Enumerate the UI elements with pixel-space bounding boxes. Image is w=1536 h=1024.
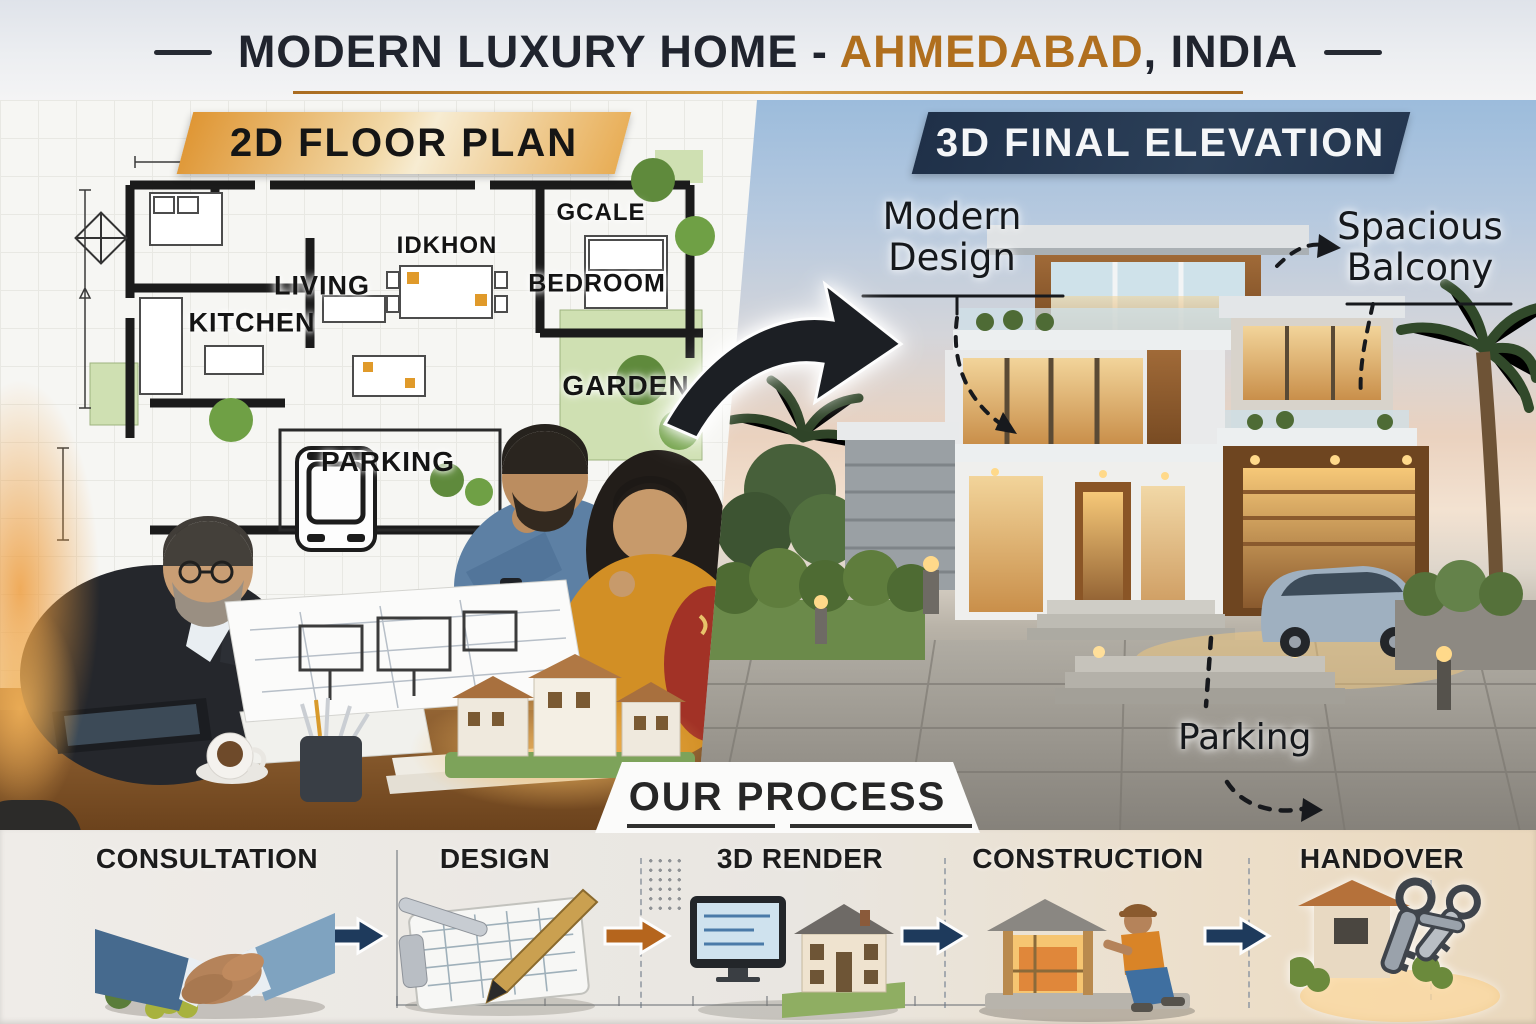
transform-arrow-icon: [655, 272, 905, 442]
process-underline-right: [790, 824, 972, 828]
step-label-3d-render: 3D RENDER: [717, 843, 883, 875]
process-title: OUR PROCESS: [629, 775, 947, 820]
monitor-house-icon: [690, 886, 905, 1021]
annotation-parking: Parking: [1178, 718, 1308, 758]
page-title: MODERN LUXURY HOME - AHMEDABAD, INDIA: [238, 26, 1298, 78]
title-prefix: MODERN LUXURY HOME -: [238, 26, 840, 77]
poster-canvas: MODERN LUXURY HOME - AHMEDABAD, INDIA: [0, 0, 1536, 1024]
title-row: MODERN LUXURY HOME - AHMEDABAD, INDIA: [0, 26, 1536, 78]
annotation-spacious-balcony: Spacious Balcony: [1320, 206, 1520, 289]
house-keys-icon: [1290, 876, 1520, 1022]
room-label-kitchen: KITCHEN: [189, 308, 316, 339]
step-label-consultation: CONSULTATION: [96, 843, 318, 875]
wall-lamp-glow-2: [0, 600, 80, 820]
dots-decoration: [646, 856, 684, 914]
room-label-living: LIVING: [274, 271, 370, 302]
step-arrow-4-icon: [1203, 916, 1273, 956]
room-label-dining: IDKHON: [397, 232, 498, 260]
process-banner: OUR PROCESS: [595, 762, 980, 833]
builder-icon: [975, 885, 1200, 1022]
clipboard-pen-icon: [395, 888, 605, 1018]
step-label-handover: HANDOVER: [1300, 843, 1464, 875]
floorplan-panel: KITCHEN LIVING IDKHON GCALE BEDROOM GARD…: [0, 100, 770, 832]
header: MODERN LUXURY HOME - AHMEDABAD, INDIA: [0, 0, 1536, 100]
step-arrow-3-icon: [900, 916, 970, 956]
elevation-banner: 3D FINAL ELEVATION: [912, 112, 1411, 174]
room-label-closet: GCALE: [557, 199, 646, 227]
compass-icon: [75, 212, 127, 264]
step-arrow-2-icon: [603, 916, 673, 956]
title-city: AHMEDABAD: [840, 26, 1144, 77]
handshake-icon: [95, 885, 335, 1024]
title-suffix: , INDIA: [1144, 26, 1299, 77]
elevation-banner-label: 3D FINAL ELEVATION: [936, 121, 1385, 166]
process-underline-left: [627, 824, 775, 828]
room-label-bedroom: BEDROOM: [528, 270, 666, 299]
title-dash-right: [1324, 50, 1382, 55]
floorplan-banner: 2D FLOOR PLAN: [177, 112, 632, 174]
title-dash-left: [154, 50, 212, 55]
step-label-design: DESIGN: [440, 843, 550, 875]
title-underline: [293, 91, 1243, 94]
annotation-modern-design: Modern Design: [832, 196, 1072, 279]
floorplan-banner-label: 2D FLOOR PLAN: [230, 121, 578, 166]
step-label-construction: CONSTRUCTION: [972, 843, 1204, 875]
